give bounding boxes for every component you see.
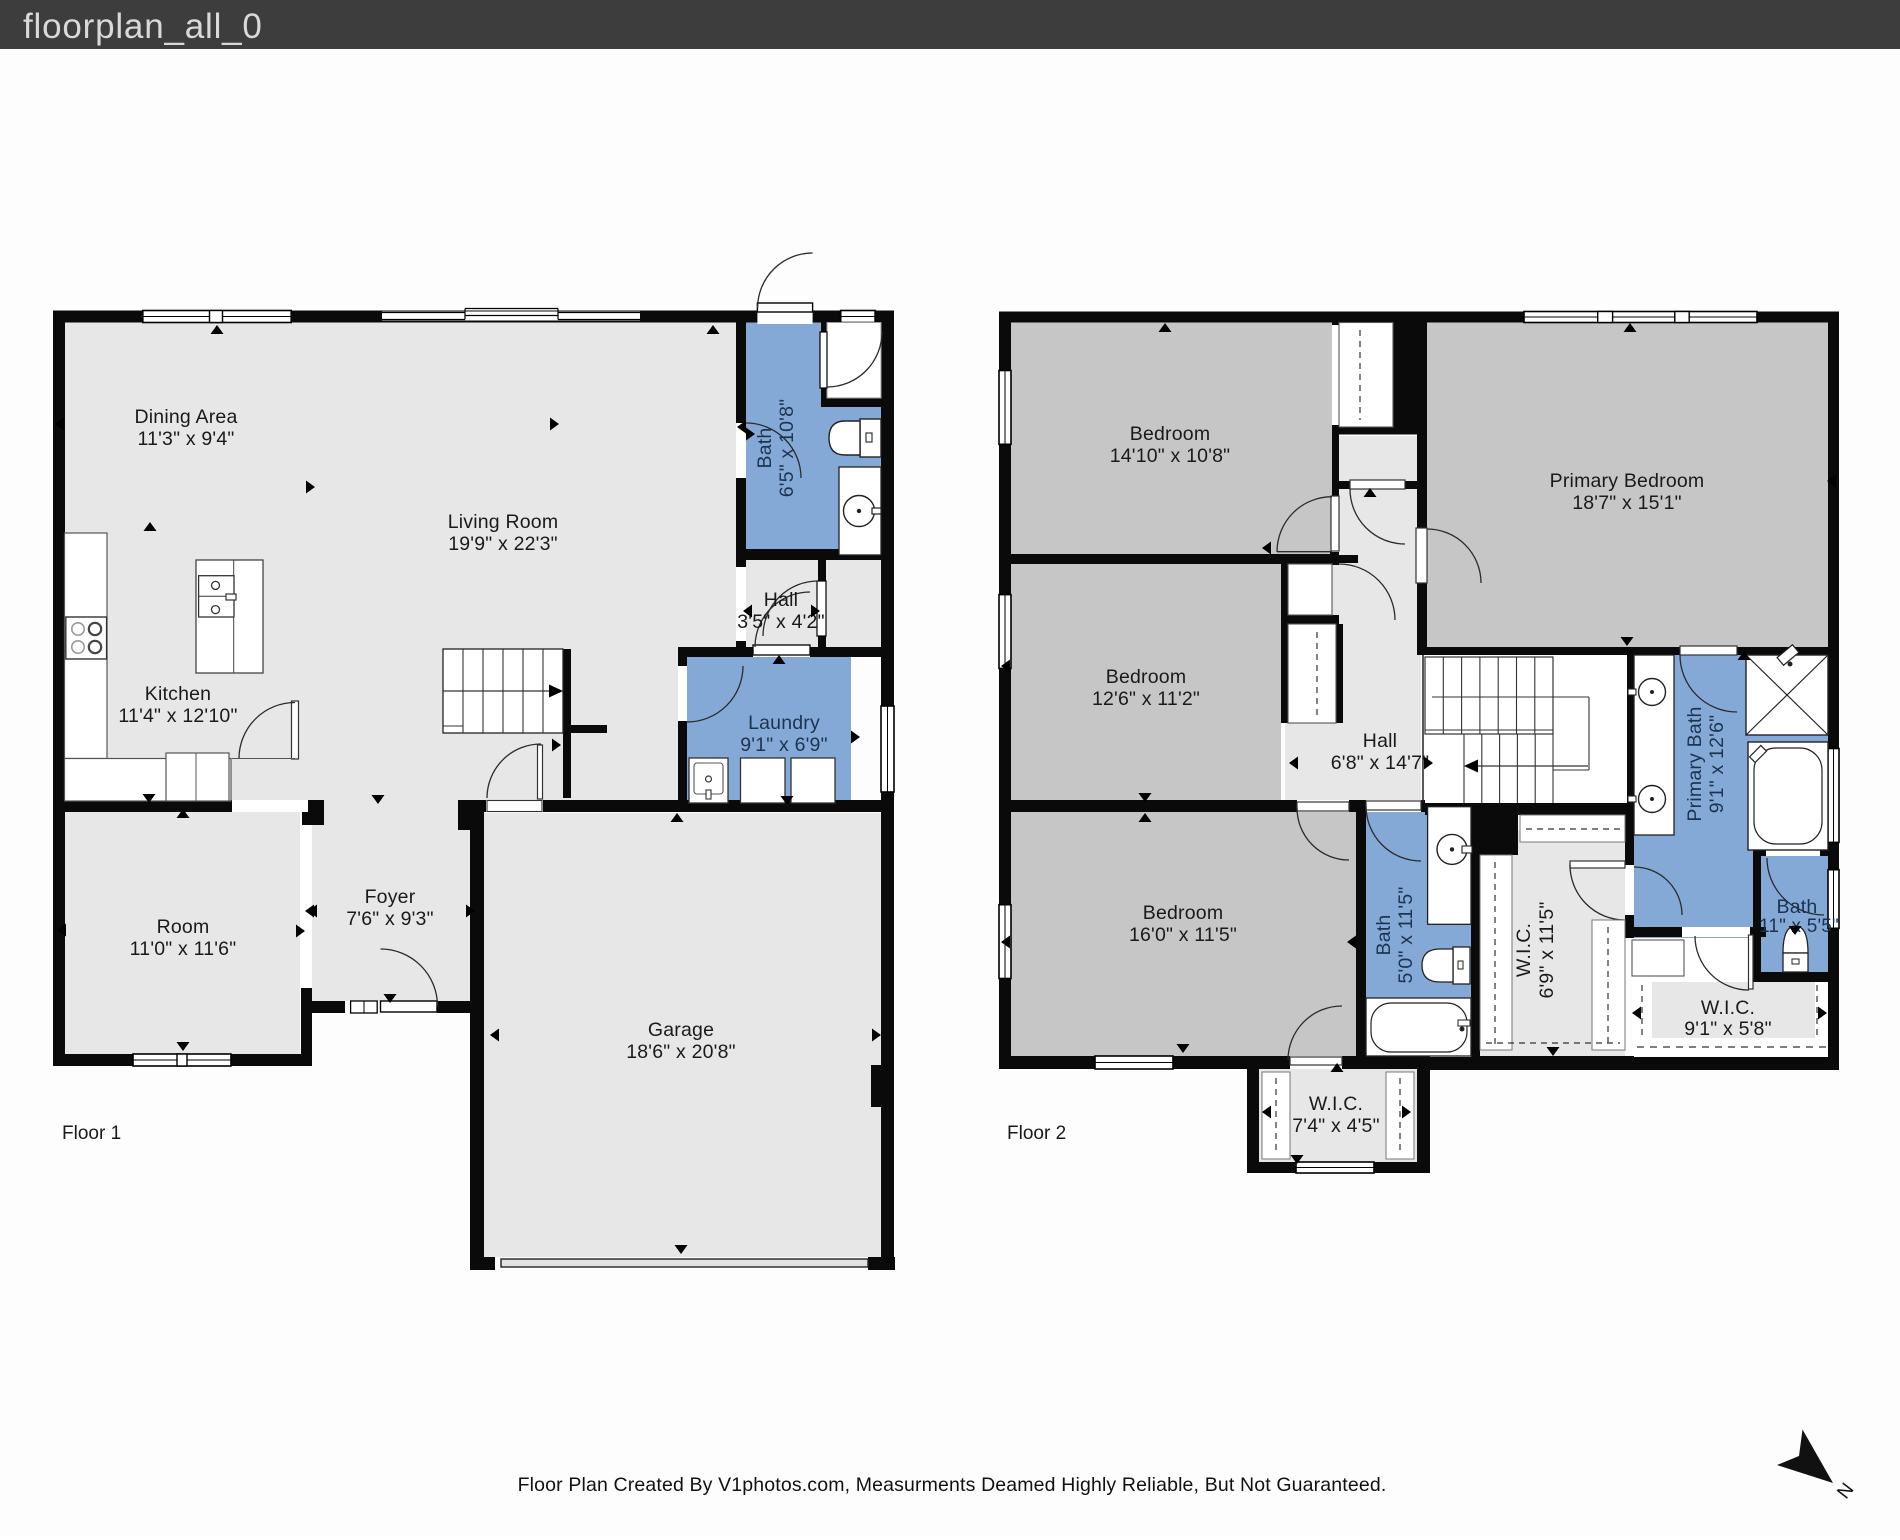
svg-text:9'1" x 5'8": 9'1" x 5'8"	[1684, 1018, 1771, 1040]
svg-text:7'4" x 4'5": 7'4" x 4'5"	[1292, 1115, 1379, 1137]
svg-text:11'4" x 12'10": 11'4" x 12'10"	[118, 705, 237, 727]
svg-text:Primary Bedroom: Primary Bedroom	[1550, 470, 1705, 492]
svg-text:Foyer: Foyer	[365, 886, 416, 908]
svg-text:11'0" x 11'6": 11'0" x 11'6"	[130, 938, 237, 960]
svg-text:Floor Plan Created By V1photos: Floor Plan Created By V1photos.com, Meas…	[518, 1474, 1387, 1496]
svg-text:6'5" x 10'8": 6'5" x 10'8"	[776, 399, 798, 498]
svg-text:Kitchen: Kitchen	[145, 683, 211, 705]
svg-text:6'8" x 14'7": 6'8" x 14'7"	[1331, 752, 1430, 774]
svg-text:Primary Bath: Primary Bath	[1684, 706, 1706, 821]
svg-text:W.I.C.: W.I.C.	[1513, 923, 1535, 977]
svg-text:9'1" x 12'6": 9'1" x 12'6"	[1706, 715, 1728, 814]
svg-text:Hall: Hall	[1363, 730, 1397, 752]
svg-text:W.I.C.: W.I.C.	[1309, 1093, 1363, 1115]
svg-text:Bedroom: Bedroom	[1106, 666, 1187, 688]
svg-text:14'10" x 10'8": 14'10" x 10'8"	[1110, 445, 1231, 467]
svg-text:Dining Area: Dining Area	[134, 406, 237, 428]
svg-text:19'9" x 22'3": 19'9" x 22'3"	[448, 533, 558, 555]
svg-text:Floor 2: Floor 2	[1007, 1123, 1066, 1144]
svg-text:Bath: Bath	[1373, 915, 1395, 956]
svg-text:9'1" x 6'9": 9'1" x 6'9"	[740, 734, 827, 756]
svg-text:floorplan_all_0: floorplan_all_0	[23, 7, 263, 46]
svg-text:18'7" x 15'1": 18'7" x 15'1"	[1572, 492, 1682, 514]
svg-text:Floor 1: Floor 1	[62, 1123, 121, 1144]
svg-text:Room: Room	[157, 916, 210, 938]
svg-text:7'6" x 9'3": 7'6" x 9'3"	[346, 908, 433, 930]
svg-text:Hall: Hall	[764, 589, 798, 611]
svg-text:12'6" x 11'2": 12'6" x 11'2"	[1092, 688, 1200, 710]
svg-text:18'6" x 20'8": 18'6" x 20'8"	[626, 1041, 736, 1063]
svg-text:Bedroom: Bedroom	[1130, 423, 1211, 445]
svg-text:Living Room: Living Room	[448, 511, 559, 533]
svg-text:11'3" x 9'4": 11'3" x 9'4"	[137, 428, 234, 450]
svg-text:Laundry: Laundry	[748, 712, 820, 734]
svg-text:Bath: Bath	[1777, 896, 1818, 918]
svg-text:Bath: Bath	[754, 428, 776, 469]
svg-text:5'0" x 11'5": 5'0" x 11'5"	[1395, 886, 1417, 983]
svg-text:6'9" x 11'5": 6'9" x 11'5"	[1536, 901, 1558, 998]
svg-text:16'0" x 11'5": 16'0" x 11'5"	[1129, 924, 1237, 946]
svg-text:W.I.C.: W.I.C.	[1701, 997, 1755, 1019]
svg-text:Bedroom: Bedroom	[1143, 902, 1224, 924]
svg-text:Garage: Garage	[648, 1019, 714, 1041]
